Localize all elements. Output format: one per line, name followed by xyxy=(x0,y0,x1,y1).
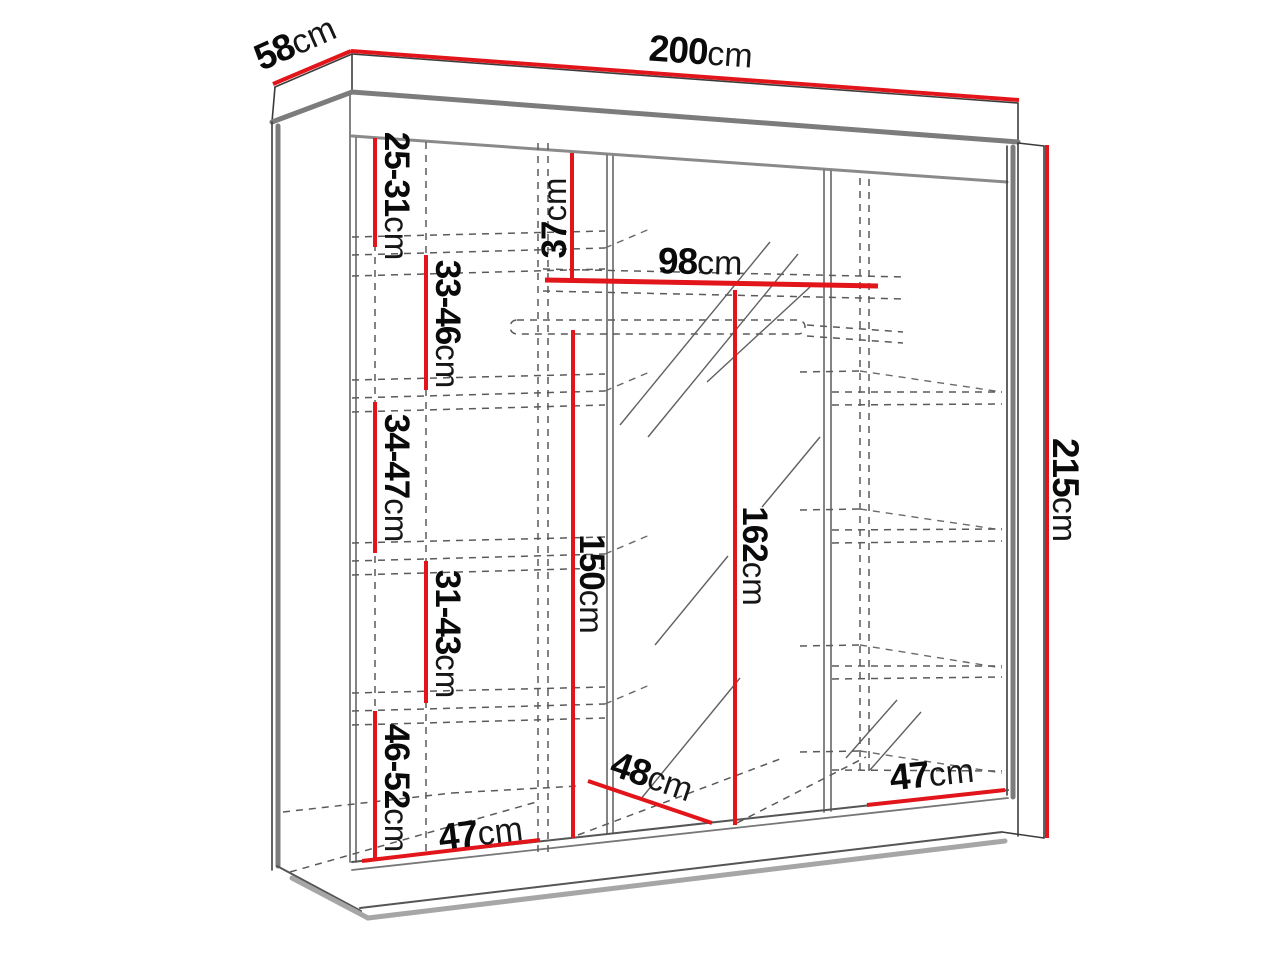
dim-height-right-unit: cm xyxy=(1045,497,1083,542)
dim-mirror-height-num: 162 xyxy=(735,506,774,562)
right-post xyxy=(1002,143,1044,838)
dim-width-top-num: 200 xyxy=(648,27,710,72)
diagram-canvas: 58cm 200cm 215cm 25-31cm 33-46cm 34-47cm… xyxy=(0,0,1280,960)
dim-shelf5-unit: cm xyxy=(378,808,415,852)
wardrobe-dimension-diagram: 58cm 200cm 215cm 25-31cm 33-46cm 34-47cm… xyxy=(0,0,1280,960)
dim-shelf4-num: 31-43 xyxy=(428,570,467,655)
dim-shelf4-label: 31-43cm xyxy=(428,570,467,699)
dim-shelf5-num: 46-52 xyxy=(377,724,416,809)
top-panel xyxy=(272,54,1018,143)
dim-middle-depth-label: 48cm xyxy=(605,743,698,809)
dim-shelf1-unit: cm xyxy=(378,216,415,260)
interior-ceiling-line xyxy=(352,136,1007,182)
dim-left-bottom-num: 47 xyxy=(436,813,480,858)
dim-shelf3-unit: cm xyxy=(378,498,415,542)
dim-mirror-height-unit: cm xyxy=(736,562,773,606)
dim-shelf4-unit: cm xyxy=(429,654,466,698)
dim-hanging-height-num: 150 xyxy=(572,534,611,590)
dim-top-clearance-label: 37cm xyxy=(535,178,574,259)
dim-right-bottom-unit: cm xyxy=(927,752,976,795)
dim-mirror-height-label: 162cm xyxy=(735,506,774,605)
left-post xyxy=(272,122,278,870)
dim-left-bottom-label: 47cm xyxy=(436,807,525,858)
dim-right-bottom-label: 47cm xyxy=(888,749,976,799)
dim-shelf1-num: 25-31 xyxy=(377,132,416,217)
dim-top-clearance-unit: cm xyxy=(536,178,573,222)
dim-height-right-label: 215cm xyxy=(1045,438,1086,542)
dim-hanging-height-label: 150cm xyxy=(572,534,611,633)
dim-top-clearance-num: 37 xyxy=(535,222,574,259)
dim-width-top-label: 200cm xyxy=(648,27,755,75)
dim-depth-top-label: 58cm xyxy=(248,7,342,79)
dim-shelf2-label: 33-46cm xyxy=(428,260,467,389)
dim-middle-width-num: 98 xyxy=(658,240,698,282)
dim-shelf3-num: 34-47 xyxy=(377,414,416,499)
dim-right-bottom-num: 47 xyxy=(888,754,931,799)
dim-middle-width-unit: cm xyxy=(697,244,743,283)
dim-width-top-unit: cm xyxy=(706,35,754,76)
dim-hanging-height-unit: cm xyxy=(573,590,610,634)
dim-middle-width-label: 98cm xyxy=(658,240,743,282)
dim-left-bottom-unit: cm xyxy=(475,810,525,853)
partition-right xyxy=(824,170,831,812)
dim-shelf2-num: 33-46 xyxy=(428,260,467,345)
dim-shelf1-label: 25-31cm xyxy=(377,132,416,261)
dim-shelf5-label: 46-52cm xyxy=(377,724,416,853)
dim-shelf2-unit: cm xyxy=(429,344,466,388)
dim-height-right-num: 215 xyxy=(1045,438,1086,497)
left-back-edge xyxy=(350,95,356,862)
dim-shelf3-label: 34-47cm xyxy=(377,414,416,543)
partition-left xyxy=(607,155,613,834)
